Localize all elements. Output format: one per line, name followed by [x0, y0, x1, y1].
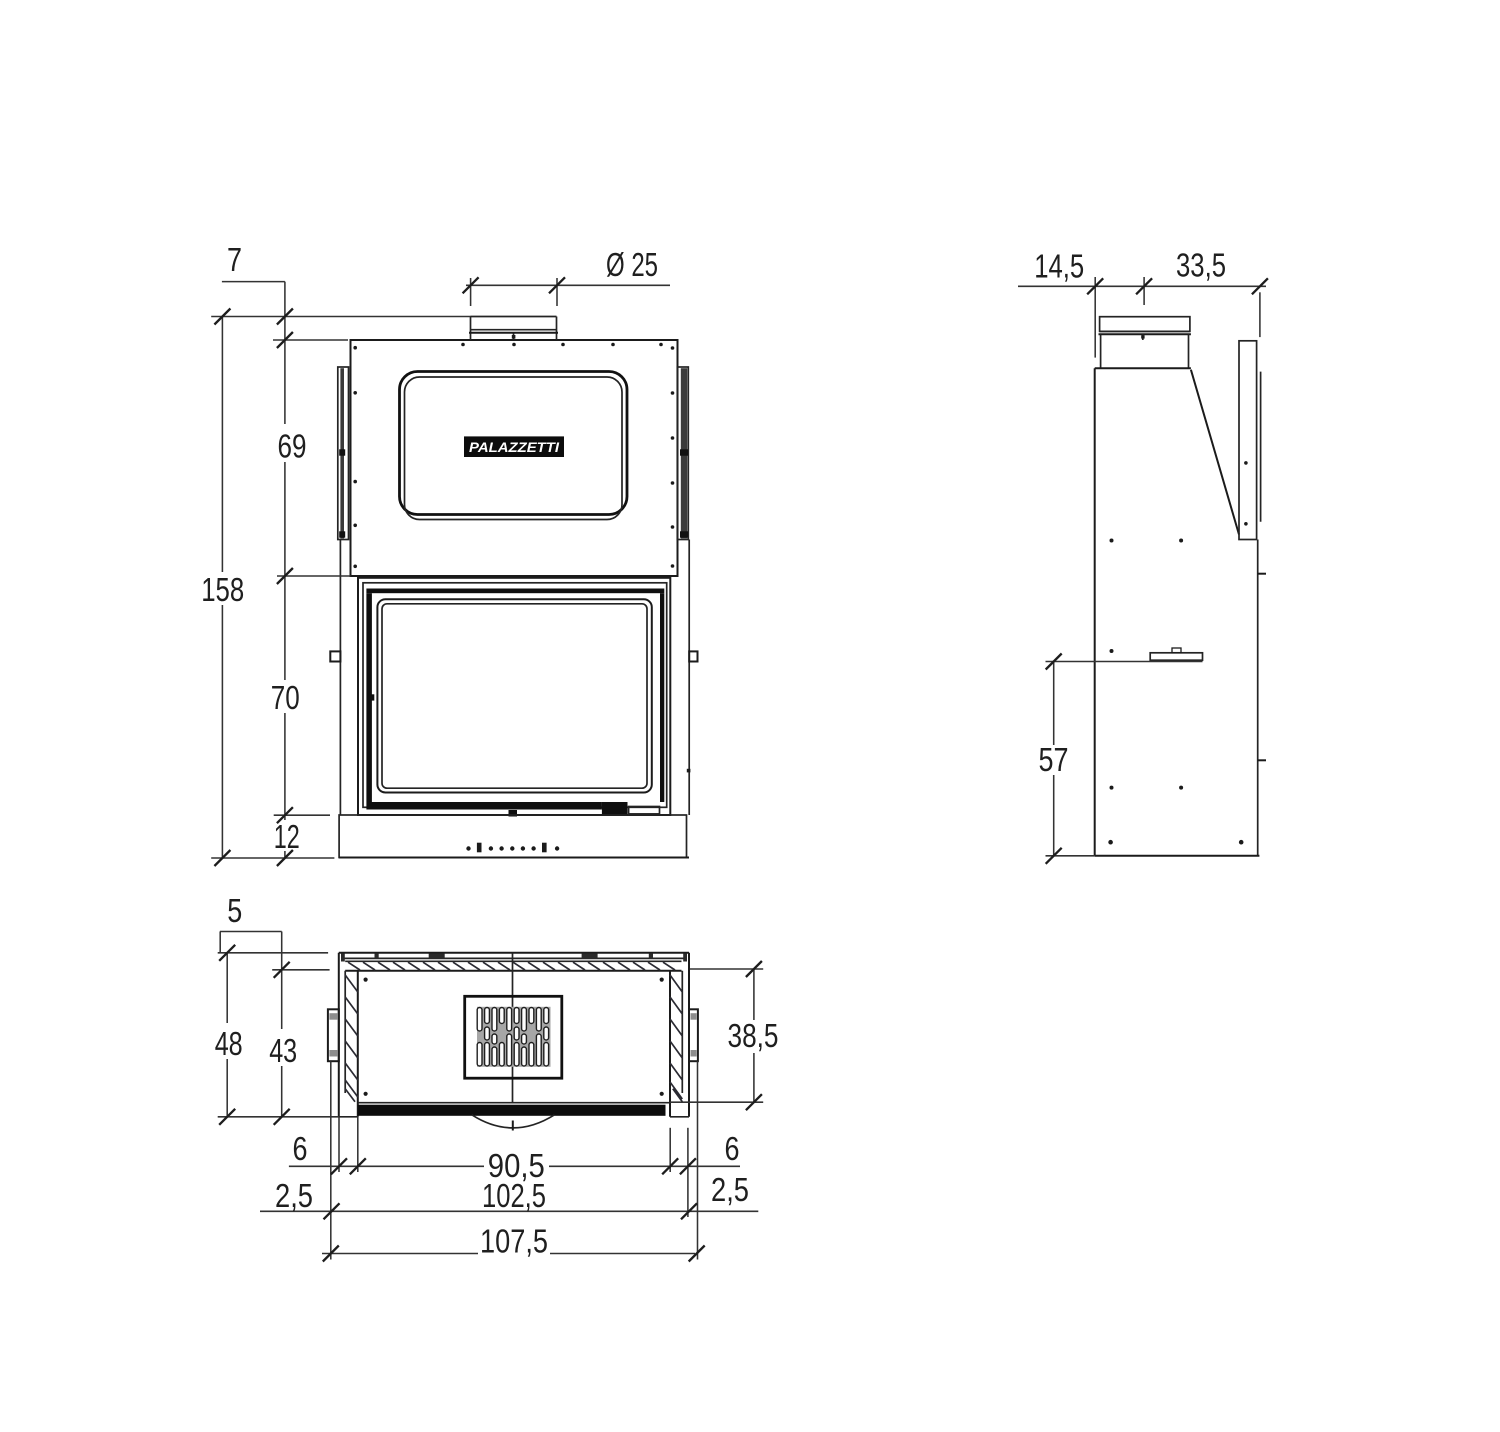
svg-text:107,5: 107,5 — [480, 1223, 548, 1260]
svg-text:7: 7 — [227, 241, 242, 278]
svg-text:2,5: 2,5 — [275, 1177, 313, 1214]
svg-text:70: 70 — [271, 679, 300, 716]
svg-text:158: 158 — [201, 571, 244, 608]
svg-text:43: 43 — [269, 1032, 297, 1069]
svg-text:33,5: 33,5 — [1176, 247, 1226, 284]
svg-text:102,5: 102,5 — [482, 1177, 546, 1214]
svg-text:PALAZZETTI: PALAZZETTI — [469, 439, 560, 455]
svg-text:6: 6 — [725, 1130, 740, 1167]
svg-text:14,5: 14,5 — [1034, 248, 1084, 285]
svg-text:5: 5 — [227, 892, 242, 929]
svg-text:38,5: 38,5 — [728, 1017, 779, 1054]
svg-text:57: 57 — [1039, 741, 1069, 778]
svg-text:69: 69 — [278, 428, 307, 465]
svg-text:Ø 25: Ø 25 — [606, 246, 658, 283]
svg-text:2,5: 2,5 — [711, 1171, 749, 1208]
svg-text:6: 6 — [293, 1130, 308, 1167]
svg-text:48: 48 — [215, 1025, 243, 1062]
